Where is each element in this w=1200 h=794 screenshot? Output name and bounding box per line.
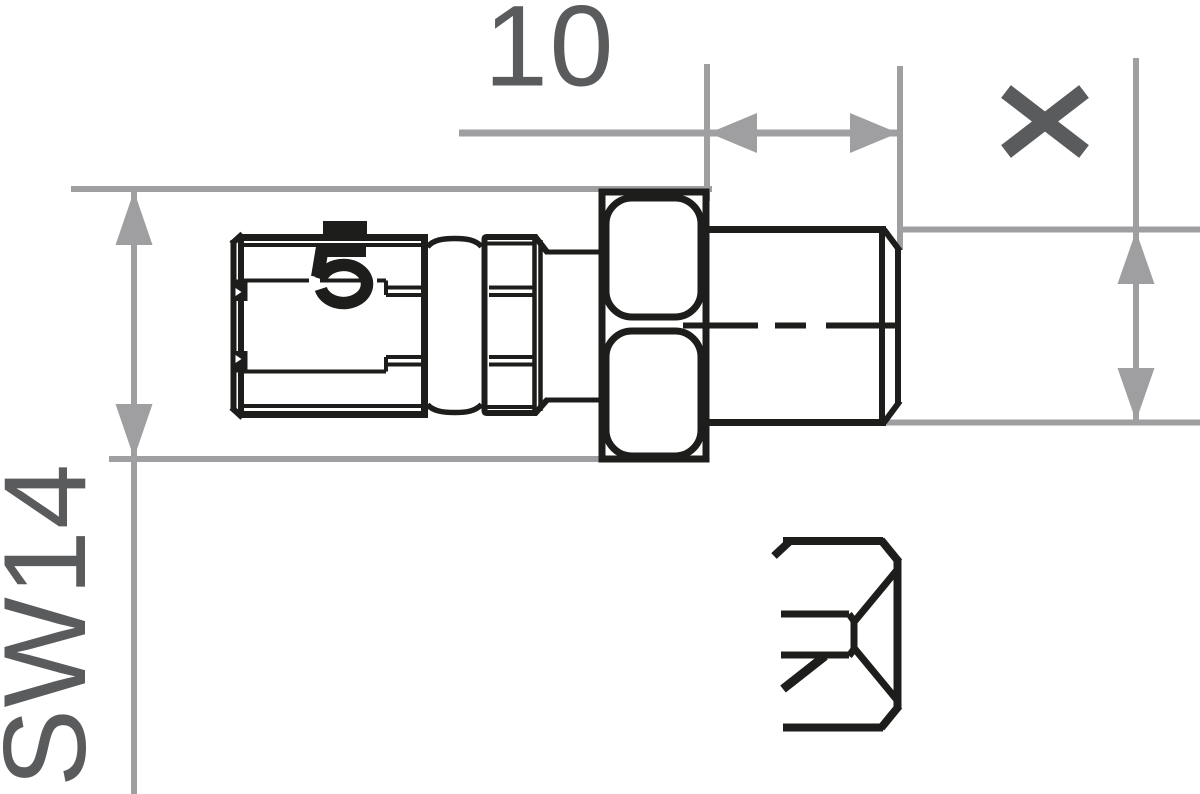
svg-text:SW14: SW14 — [0, 462, 110, 787]
svg-text:10: 10 — [484, 0, 615, 111]
